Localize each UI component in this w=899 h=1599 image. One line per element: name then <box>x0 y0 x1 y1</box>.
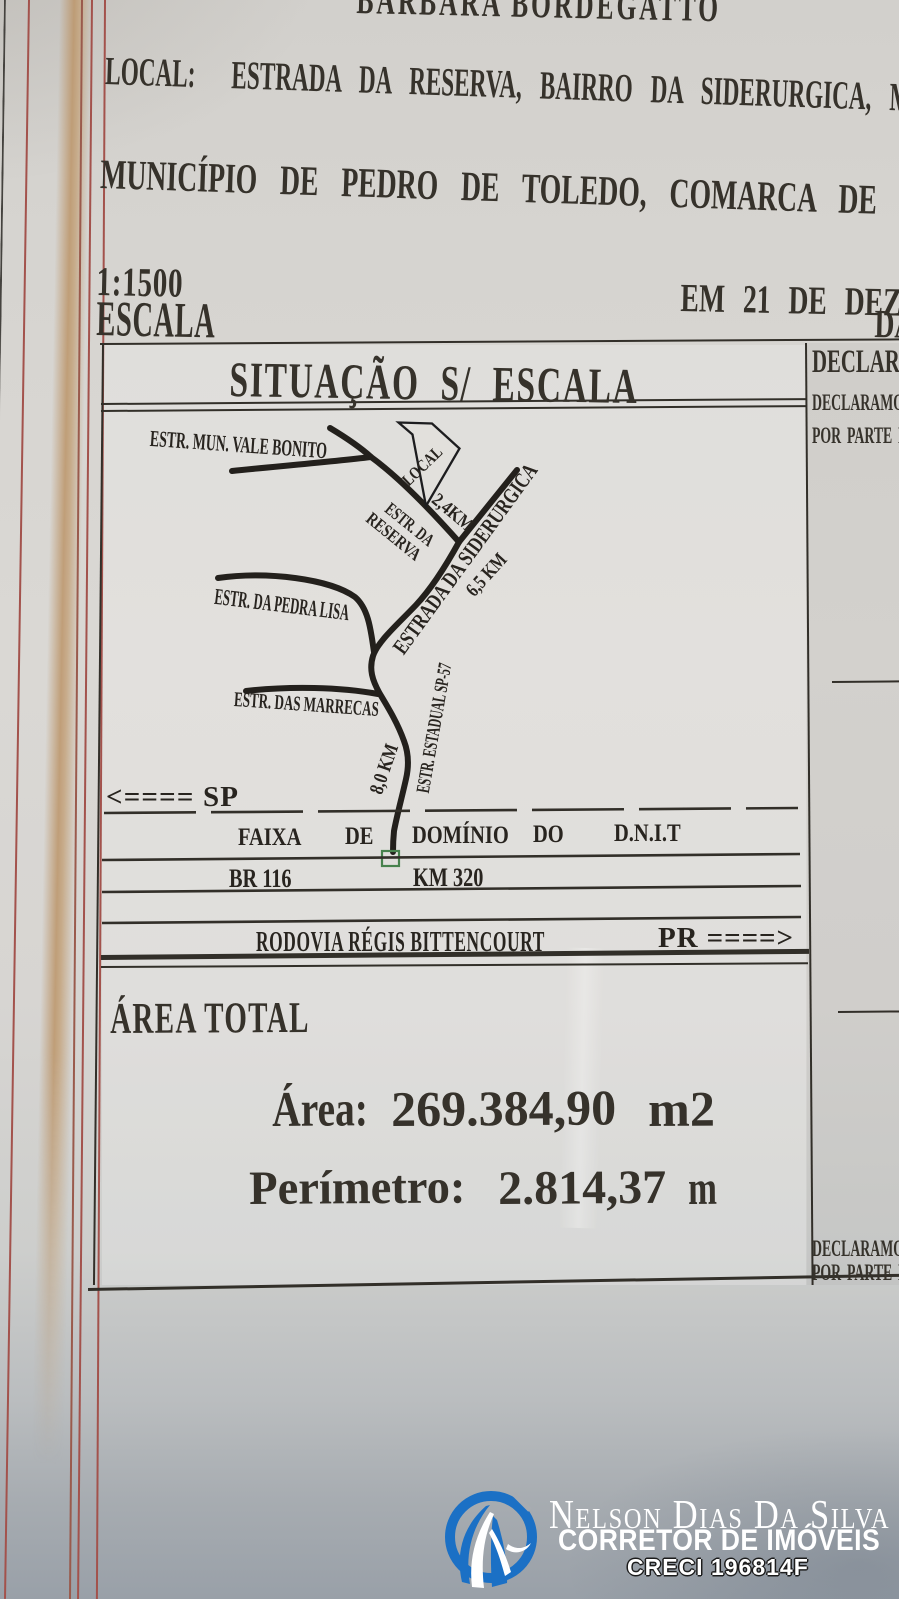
svg-text:DO: DO <box>533 820 564 847</box>
svg-text:FAIXA: FAIXA <box>238 823 302 850</box>
svg-text:<==== SP: <==== SP <box>106 781 238 813</box>
svg-text:PR ====>: PR ====> <box>658 922 793 954</box>
svg-text:D.N.I.T: D.N.I.T <box>614 819 681 846</box>
svg-text:ESTR. DA PEDRA LISA: ESTR. DA PEDRA LISA <box>213 584 351 626</box>
svg-text:ESTR. ESTADUAL SP-57: ESTR. ESTADUAL SP-57 <box>413 661 456 794</box>
svg-text:DOMÍNIO: DOMÍNIO <box>412 821 509 848</box>
svg-text:ESTR. MUN. VALE BONITO: ESTR. MUN. VALE BONITO <box>149 426 328 464</box>
svg-text:DE: DE <box>345 822 373 849</box>
svg-text:8,0 KM: 8,0 KM <box>365 741 403 797</box>
svg-text:RODOVIA RÉGIS BITTENCOURT: RODOVIA RÉGIS BITTENCOURT <box>256 927 545 959</box>
